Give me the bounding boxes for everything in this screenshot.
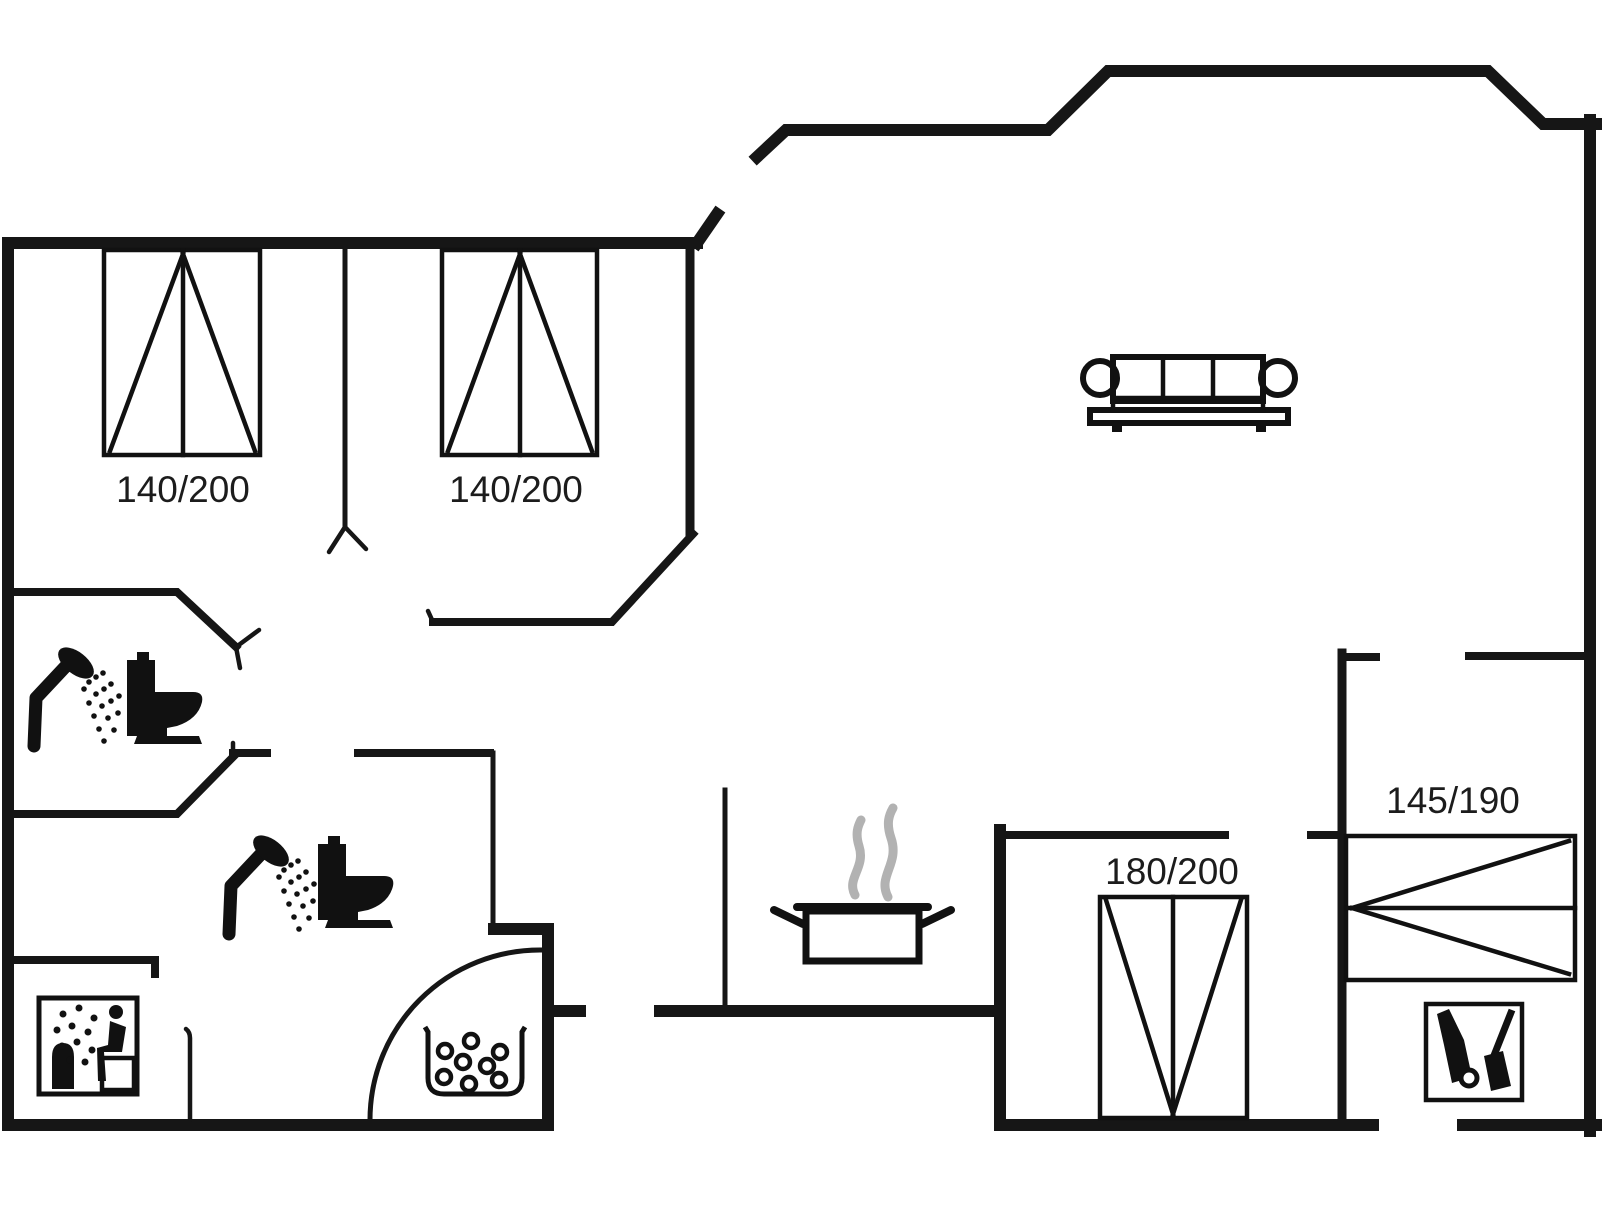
floor-plan: 140/200 140/200 180/200 145/190 — [0, 0, 1606, 1205]
bed-left-size-label: 140/200 — [116, 469, 250, 510]
shower-icon — [229, 829, 317, 934]
vacuum-broom-icon — [1426, 1004, 1522, 1100]
sauna-icon — [39, 998, 137, 1094]
bed-double-middle — [442, 250, 597, 455]
shower-icon — [34, 641, 122, 746]
toilet-icon — [318, 836, 393, 928]
floor-plan-page: 140/200 140/200 180/200 145/190 — [0, 0, 1606, 1205]
bed-double-bottom — [1100, 897, 1247, 1118]
bed-double-left — [104, 250, 260, 455]
inner-walls — [8, 243, 1590, 1125]
bed-middle-size-label: 140/200 — [449, 469, 583, 510]
bed-bottom-size-label: 180/200 — [1105, 851, 1239, 892]
bed-right-size-label: 145/190 — [1386, 780, 1520, 821]
whirlpool-tub-icon — [425, 1027, 525, 1094]
sofa-icon — [1083, 357, 1295, 432]
bed-double-right — [1346, 836, 1575, 980]
outer-walls — [8, 71, 1596, 1131]
toilet-icon — [127, 652, 202, 744]
cooking-pot-icon — [774, 808, 951, 961]
